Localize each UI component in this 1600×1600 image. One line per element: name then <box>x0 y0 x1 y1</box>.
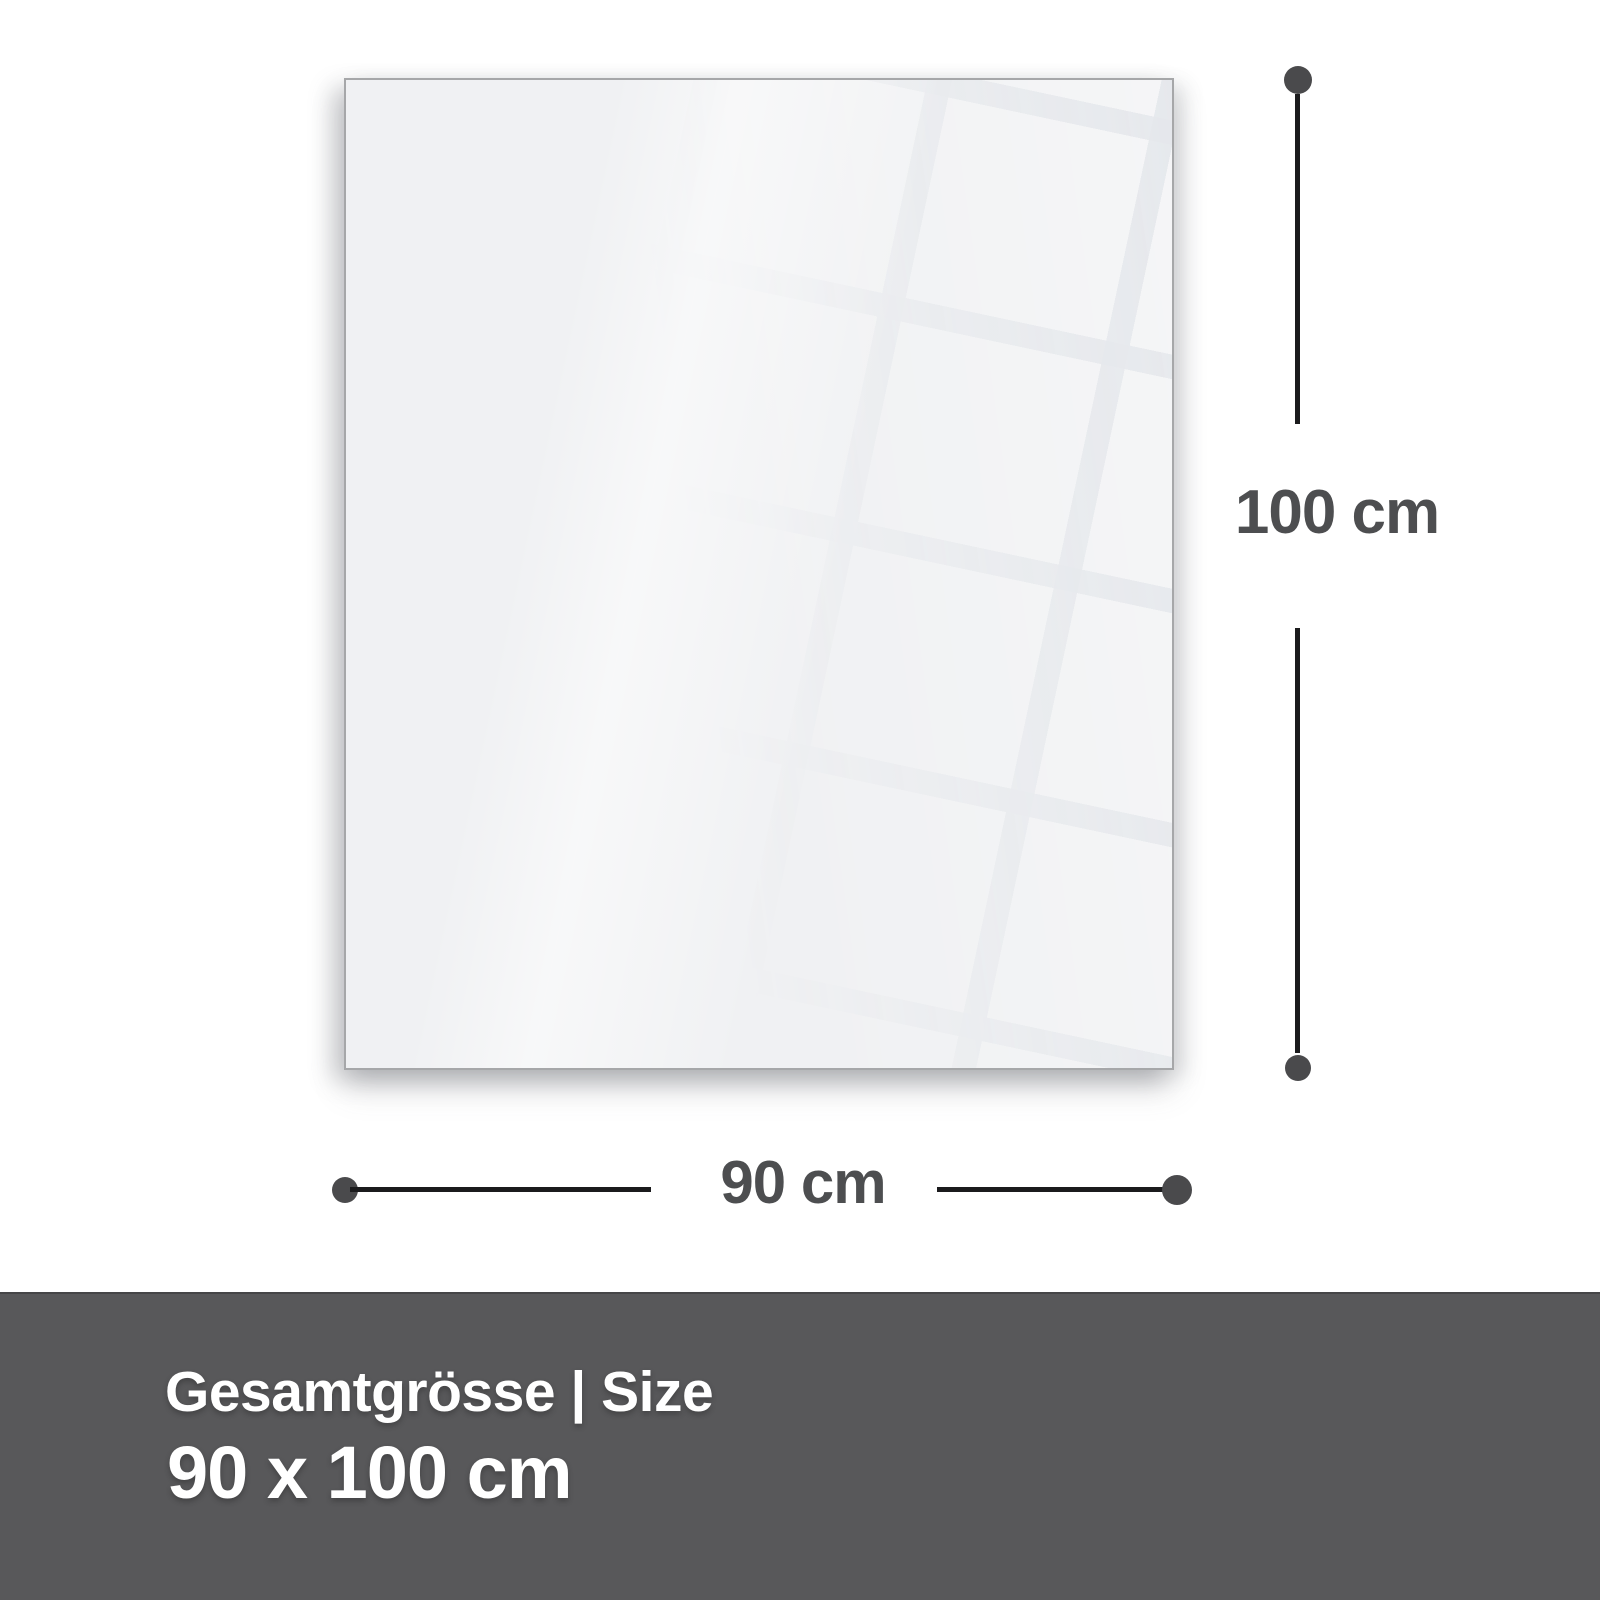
footer-title: Gesamtgrösse | Size <box>165 1364 713 1421</box>
width-dimension-endpoint-dot-right <box>1162 1175 1192 1205</box>
product-size-diagram: 100 cm 90 cm Gesamtgrösse | Size 90 x 10… <box>0 0 1600 1600</box>
height-dimension-line-lower <box>1295 628 1300 1053</box>
glass-panel <box>344 78 1174 1070</box>
height-dimension-line-upper <box>1295 94 1300 424</box>
width-dimension-line-left <box>350 1187 651 1192</box>
height-dimension-endpoint-dot-top <box>1284 66 1312 94</box>
size-footer: Gesamtgrösse | Size 90 x 100 cm <box>0 1292 1600 1600</box>
width-dimension-line-right <box>937 1187 1177 1192</box>
height-dimension-label: 100 cm <box>1235 482 1439 544</box>
width-dimension-label: 90 cm <box>720 1153 885 1213</box>
height-dimension-endpoint-dot-bottom <box>1285 1055 1311 1081</box>
glass-sheen-reflection <box>346 80 1172 1068</box>
footer-size-value: 90 x 100 cm <box>167 1436 572 1510</box>
